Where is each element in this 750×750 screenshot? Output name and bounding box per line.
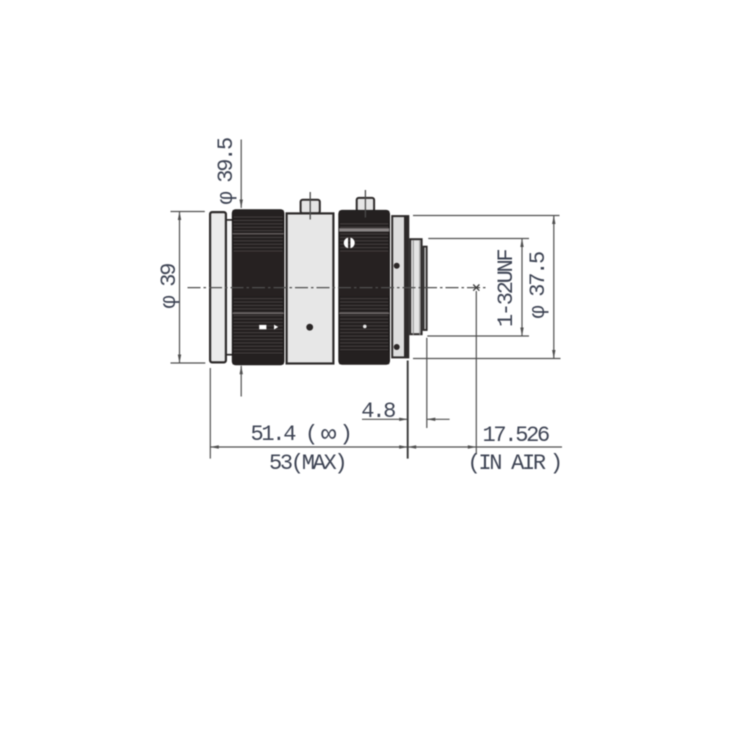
- svg-text:φ 37.5: φ 37.5: [526, 252, 551, 319]
- svg-text:φ 39.5: φ 39.5: [214, 138, 239, 205]
- svg-text:4.8: 4.8: [361, 399, 395, 424]
- svg-text:φ 39: φ 39: [157, 264, 182, 309]
- svg-text:53(MAX): 53(MAX): [269, 451, 345, 476]
- svg-text:17.526: 17.526: [483, 423, 550, 448]
- svg-text:1-32UNF: 1-32UNF: [494, 250, 519, 327]
